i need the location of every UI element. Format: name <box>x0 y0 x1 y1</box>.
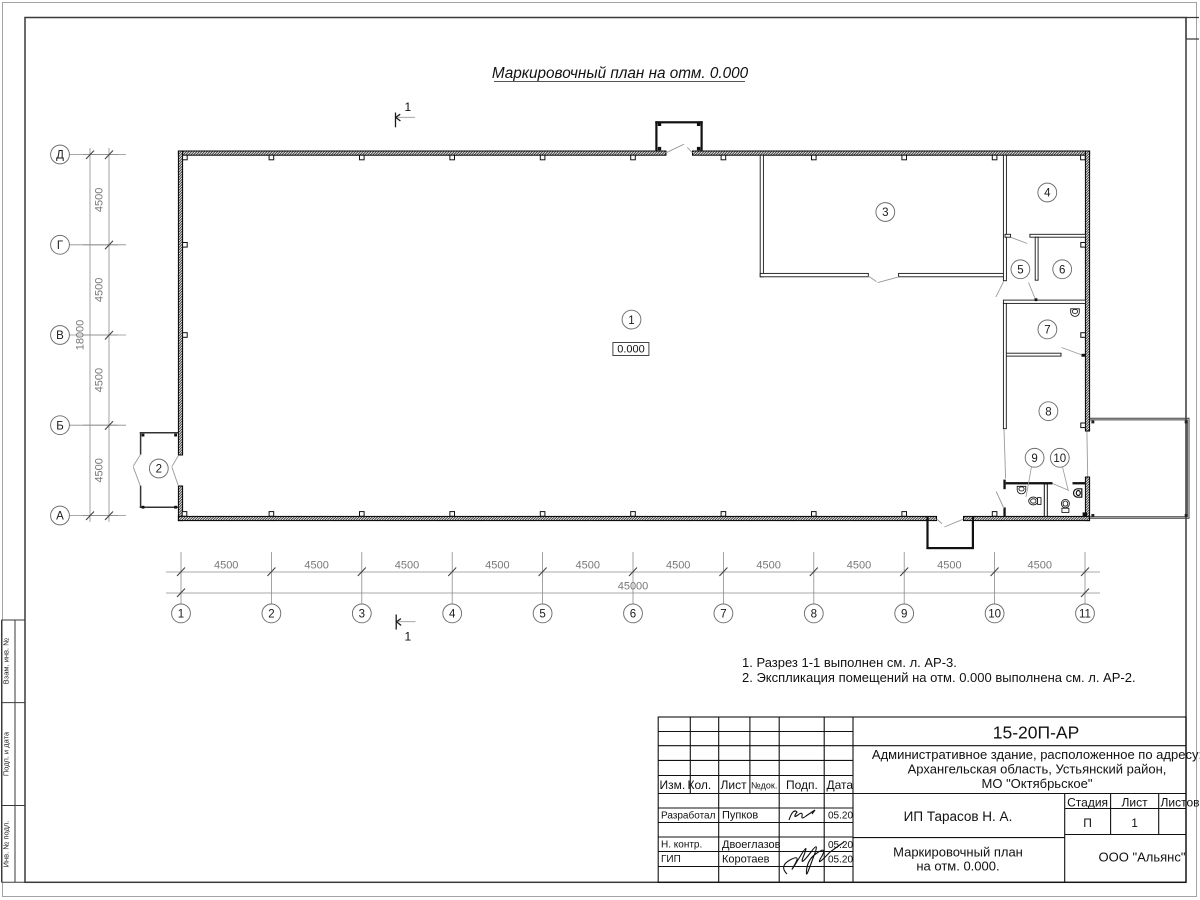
svg-text:1. Разрез 1-1 выполнен см. л.: 1. Разрез 1-1 выполнен см. л. АР-3. <box>742 655 957 670</box>
svg-text:6: 6 <box>1059 265 1065 277</box>
svg-text:Подп.: Подп. <box>786 778 818 792</box>
svg-text:Б: Б <box>56 420 64 432</box>
svg-text:Взам. инв. №: Взам. инв. № <box>2 638 11 684</box>
svg-text:Архангельская область, Устьянс: Архангельская область, Устьянский район, <box>908 761 1167 776</box>
svg-text:1: 1 <box>178 609 184 621</box>
svg-text:7: 7 <box>720 609 726 621</box>
svg-text:ИП Тарасов Н. А.: ИП Тарасов Н. А. <box>904 809 1013 824</box>
svg-text:Лист: Лист <box>1122 795 1149 809</box>
svg-text:0.000: 0.000 <box>617 344 645 356</box>
svg-text:4500: 4500 <box>756 560 780 572</box>
svg-text:4500: 4500 <box>1028 560 1052 572</box>
svg-text:3: 3 <box>359 609 365 621</box>
svg-text:Двоеглазов: Двоеглазов <box>722 839 781 851</box>
svg-text:8: 8 <box>811 609 817 621</box>
svg-text:2: 2 <box>156 464 162 476</box>
svg-text:Г: Г <box>57 240 64 252</box>
svg-text:Лист: Лист <box>721 778 748 792</box>
svg-text:Административное здание, распо: Административное здание, расположенное п… <box>872 747 1200 762</box>
svg-text:8: 8 <box>1045 406 1051 418</box>
svg-text:МО "Октябрьское": МО "Октябрьское" <box>982 776 1093 791</box>
svg-text:2. Экспликация помещений на от: 2. Экспликация помещений на отм. 0.000 в… <box>742 670 1136 685</box>
svg-text:6: 6 <box>630 609 636 621</box>
svg-text:Маркировочный план на отм. 0.0: Маркировочный план на отм. 0.000 <box>492 65 749 82</box>
svg-text:В: В <box>56 330 64 342</box>
svg-text:Коротаев: Коротаев <box>722 853 770 865</box>
svg-text:4: 4 <box>1044 188 1051 200</box>
svg-text:Разработал: Разработал <box>661 809 716 821</box>
svg-text:2: 2 <box>268 609 274 621</box>
svg-text:Кол.: Кол. <box>688 778 712 792</box>
svg-text:3: 3 <box>882 207 888 219</box>
svg-text:Подп. и дата: Подп. и дата <box>2 731 11 776</box>
svg-text:4500: 4500 <box>304 560 328 572</box>
svg-text:7: 7 <box>1044 325 1050 337</box>
svg-text:4500: 4500 <box>94 278 106 302</box>
svg-text:4500: 4500 <box>666 560 690 572</box>
svg-text:10: 10 <box>1053 453 1066 465</box>
svg-text:4500: 4500 <box>576 560 600 572</box>
svg-text:4: 4 <box>449 609 456 621</box>
svg-text:Н. контр.: Н. контр. <box>661 839 702 850</box>
svg-text:1: 1 <box>405 100 412 114</box>
svg-text:Листов: Листов <box>1161 795 1200 809</box>
svg-text:18000: 18000 <box>75 320 87 351</box>
svg-text:Д: Д <box>56 150 64 162</box>
svg-text:9: 9 <box>1031 453 1037 465</box>
svg-text:П: П <box>1083 816 1092 830</box>
svg-text:05.20: 05.20 <box>828 840 853 851</box>
svg-text:А: А <box>56 511 64 523</box>
svg-text:10: 10 <box>988 609 1001 621</box>
svg-text:4500: 4500 <box>847 560 871 572</box>
svg-text:5: 5 <box>1017 265 1023 277</box>
svg-text:на отм. 0.000.: на отм. 0.000. <box>916 858 999 873</box>
svg-text:4500: 4500 <box>485 560 509 572</box>
svg-text:Стадия: Стадия <box>1067 795 1108 809</box>
svg-text:№док.: №док. <box>751 781 777 791</box>
svg-text:Изм.: Изм. <box>660 778 686 792</box>
svg-text:1: 1 <box>628 315 634 327</box>
svg-text:4500: 4500 <box>94 188 106 212</box>
svg-text:Дата: Дата <box>827 778 854 792</box>
svg-text:4500: 4500 <box>937 560 961 572</box>
svg-text:1: 1 <box>1131 816 1138 830</box>
svg-text:15-20П-АР: 15-20П-АР <box>993 723 1080 743</box>
svg-text:Инв. № подл.: Инв. № подл. <box>2 821 11 868</box>
svg-text:4500: 4500 <box>94 458 106 482</box>
svg-text:1: 1 <box>405 630 412 644</box>
svg-text:4500: 4500 <box>94 368 106 392</box>
svg-text:45000: 45000 <box>618 581 649 593</box>
svg-text:05.20: 05.20 <box>828 811 853 822</box>
svg-text:4500: 4500 <box>395 560 419 572</box>
svg-text:Пупков: Пупков <box>722 810 758 822</box>
svg-text:11: 11 <box>1079 609 1091 621</box>
svg-text:5: 5 <box>539 609 545 621</box>
svg-text:4500: 4500 <box>214 560 238 572</box>
svg-text:ГИП: ГИП <box>661 854 681 865</box>
svg-text:ООО "Альянс": ООО "Альянс" <box>1099 849 1186 864</box>
svg-text:9: 9 <box>901 609 907 621</box>
svg-text:05.20: 05.20 <box>828 854 853 865</box>
svg-text:Маркировочный план: Маркировочный план <box>893 844 1023 859</box>
